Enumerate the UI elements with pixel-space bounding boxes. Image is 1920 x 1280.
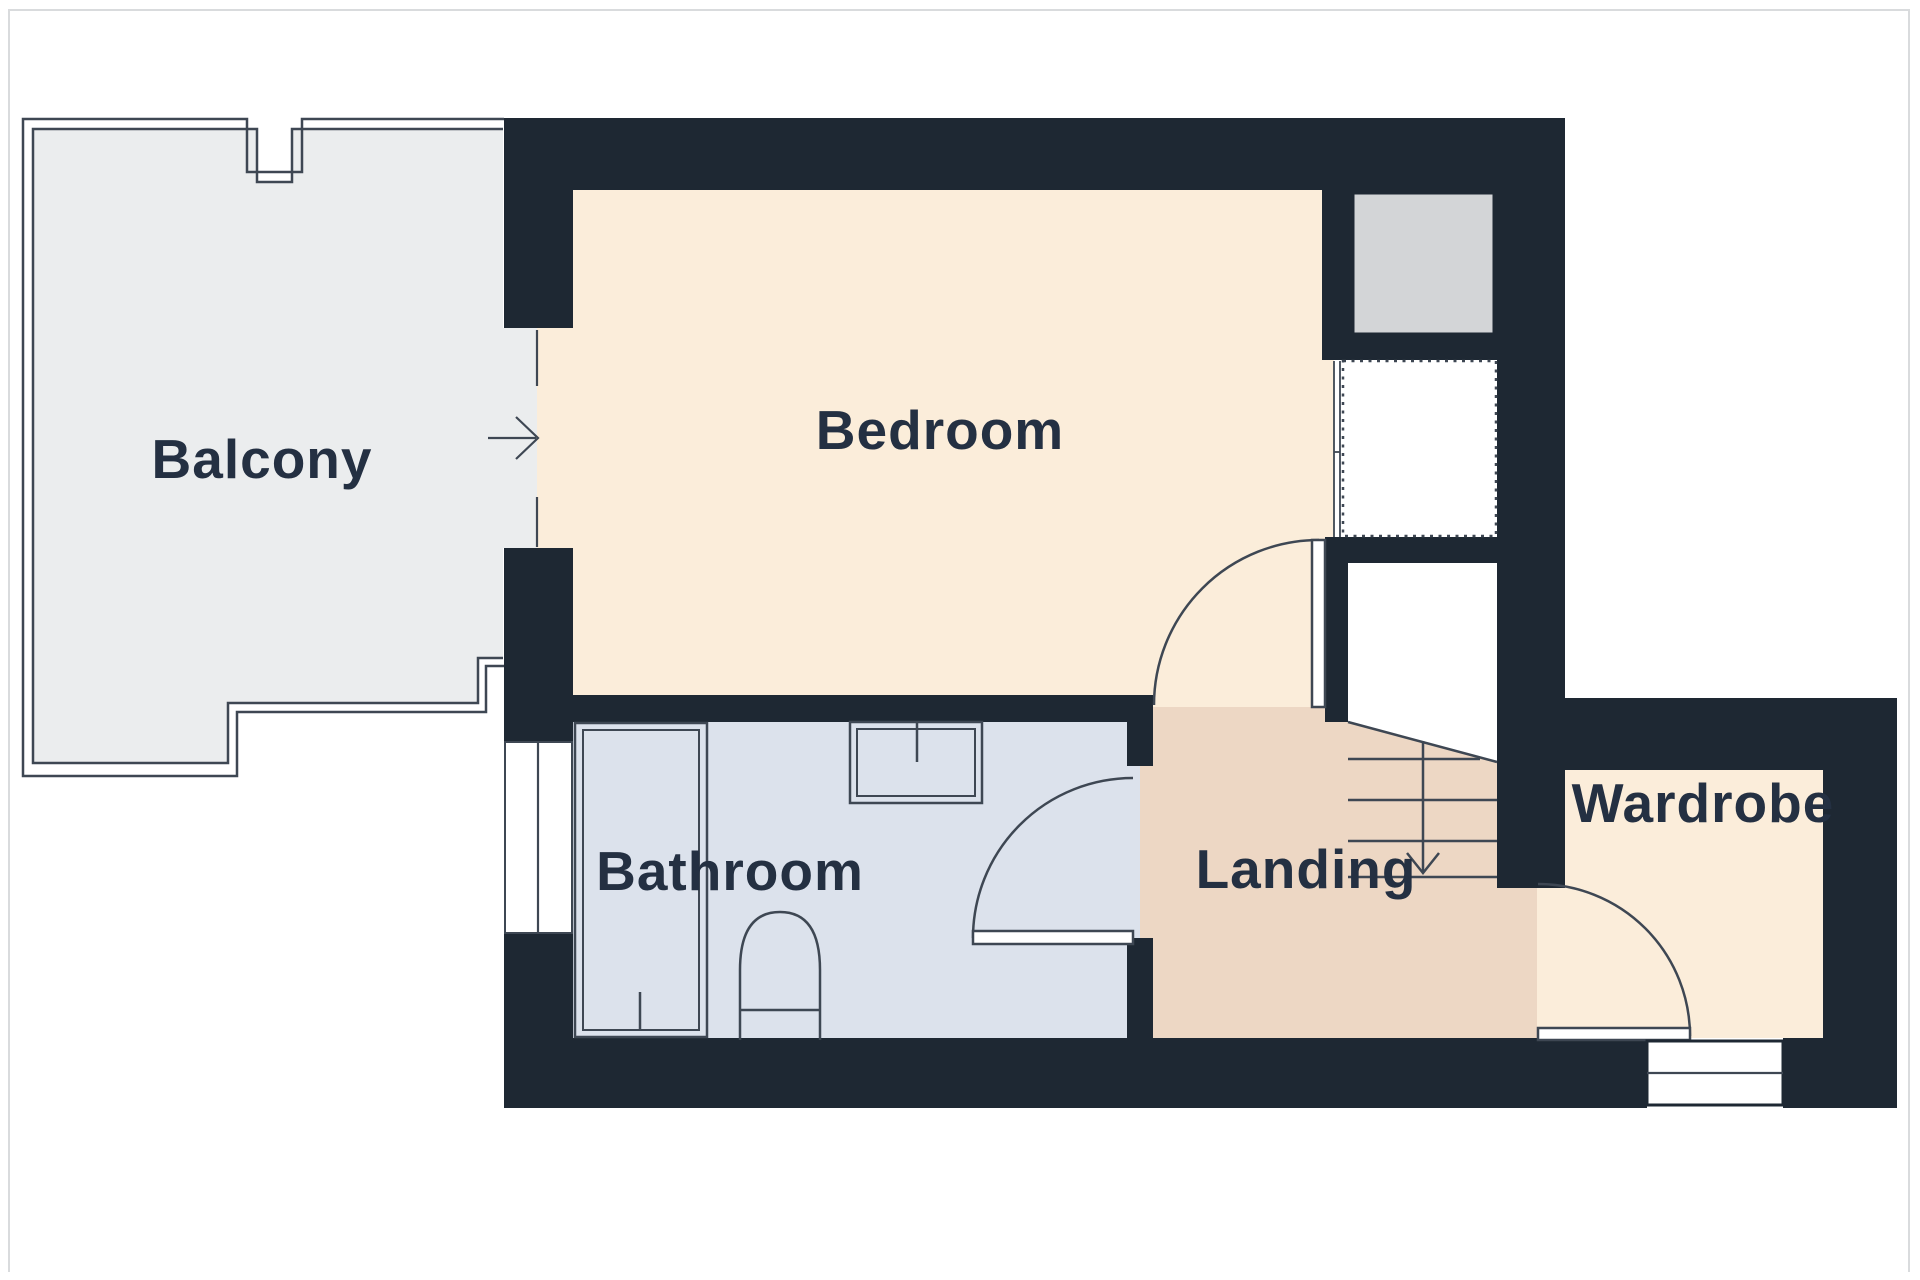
bedroom-label: Bedroom: [816, 399, 1064, 461]
bathroom-window: [505, 742, 572, 933]
wall: [1325, 537, 1497, 563]
door-threshold: [1127, 766, 1140, 938]
floor-plan-page: Balcony Bedroom Bathroom Landing Wardrob…: [0, 0, 1920, 1280]
wall: [1127, 722, 1153, 766]
bathroom-label: Bathroom: [596, 840, 864, 902]
landing-label: Landing: [1196, 838, 1417, 900]
wardrobe-window: [1647, 1041, 1783, 1105]
wall: [573, 695, 1153, 722]
wall: [504, 190, 573, 328]
wall: [504, 1038, 1647, 1108]
floor-plan: Balcony Bedroom Bathroom Landing Wardrob…: [0, 0, 1920, 1280]
door-threshold: [537, 328, 573, 548]
door-leaf: [1538, 1028, 1690, 1040]
balcony-label: Balcony: [152, 428, 373, 490]
door-leaf: [973, 931, 1133, 944]
wall: [504, 118, 1565, 190]
chimney-box: [1352, 192, 1495, 335]
wardrobe-label: Wardrobe: [1572, 772, 1835, 834]
wall: [1325, 543, 1348, 722]
skylight-void: [1334, 361, 1496, 537]
wall: [1127, 938, 1153, 1038]
wall: [504, 548, 573, 742]
wall: [1497, 190, 1565, 888]
wall: [1565, 698, 1897, 770]
wall: [1322, 190, 1350, 360]
door-leaf: [1312, 540, 1325, 707]
skylight-dotted-box: [1343, 361, 1496, 536]
door-threshold: [1140, 766, 1153, 938]
wall: [504, 933, 573, 1038]
